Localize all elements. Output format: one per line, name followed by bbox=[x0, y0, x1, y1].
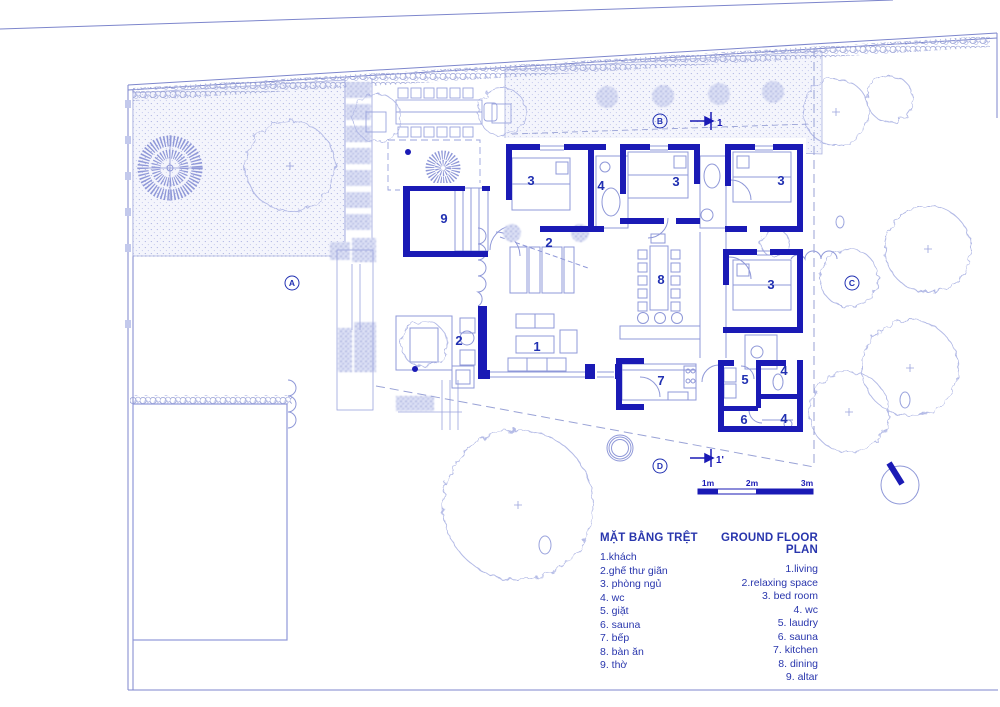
room-label-bedroom-right: 3 bbox=[767, 277, 774, 292]
scale-label-1m: 1m bbox=[702, 478, 715, 488]
legend-item-en-3: 3. bed room bbox=[688, 590, 818, 604]
ground-floor-plan-page: { "drawing": { "rooms": [ {"id": "altar"… bbox=[0, 0, 1000, 707]
section-letter-d: D bbox=[657, 461, 663, 471]
altar-court bbox=[388, 140, 480, 190]
room-label-wc-top: 4 bbox=[597, 178, 605, 193]
lawn-plot bbox=[133, 404, 287, 640]
legend-item-en-8: 8. dining bbox=[688, 658, 818, 672]
legend-item-en-7: 7. kitchen bbox=[688, 644, 818, 658]
floor-plan-drawing: A B C D 1 1' 1m 2m 3m 9 3 4 2 3 3 8 3 2 … bbox=[0, 0, 1000, 707]
section-letter-c: C bbox=[849, 278, 855, 288]
room-label-bedroom-2: 3 bbox=[672, 174, 679, 189]
legend-item-en-5: 5. laudry bbox=[688, 617, 818, 631]
scale-bar bbox=[698, 489, 813, 494]
room-label-wc-bottom: 4 bbox=[780, 411, 788, 426]
north-arrow bbox=[881, 463, 919, 504]
legend-item-en-2: 2.relaxing space bbox=[688, 577, 818, 591]
room-label-bedroom-3: 3 bbox=[777, 173, 784, 188]
room-label-kitchen: 7 bbox=[657, 373, 664, 388]
room-label-dining: 8 bbox=[657, 272, 664, 287]
outdoor-dining bbox=[353, 88, 526, 142]
legend-item-en-1: 1.living bbox=[688, 563, 818, 577]
legend-item-en-9: 9. altar bbox=[688, 671, 818, 685]
room-label-relax-terrace: 2 bbox=[455, 333, 462, 348]
legend-item-en-6: 6. sauna bbox=[688, 631, 818, 645]
room-label-wc-mid: 4 bbox=[780, 363, 788, 378]
section-letter-b: B bbox=[657, 116, 663, 126]
room-label-sauna: 6 bbox=[740, 412, 747, 427]
room-label-altar: 9 bbox=[440, 211, 447, 226]
cut-label-1: 1 bbox=[717, 118, 723, 129]
legend-title-en: GROUND FLOOR PLAN bbox=[688, 532, 818, 556]
room-label-laundry: 5 bbox=[741, 372, 748, 387]
cut-label-1-prime: 1' bbox=[716, 455, 724, 466]
scale-label-2m: 2m bbox=[746, 478, 759, 488]
room-label-living: 1 bbox=[533, 339, 540, 354]
room-label-relax-inner: 2 bbox=[545, 235, 552, 250]
room-label-bedroom-1: 3 bbox=[527, 173, 534, 188]
legend-item-en-4: 4. wc bbox=[688, 604, 818, 618]
section-letter-a: A bbox=[289, 278, 295, 288]
tree-top-right-2 bbox=[867, 76, 913, 122]
legend-english: GROUND FLOOR PLAN 1.living 2.relaxing sp… bbox=[688, 532, 818, 685]
scale-label-3m: 3m bbox=[801, 478, 814, 488]
